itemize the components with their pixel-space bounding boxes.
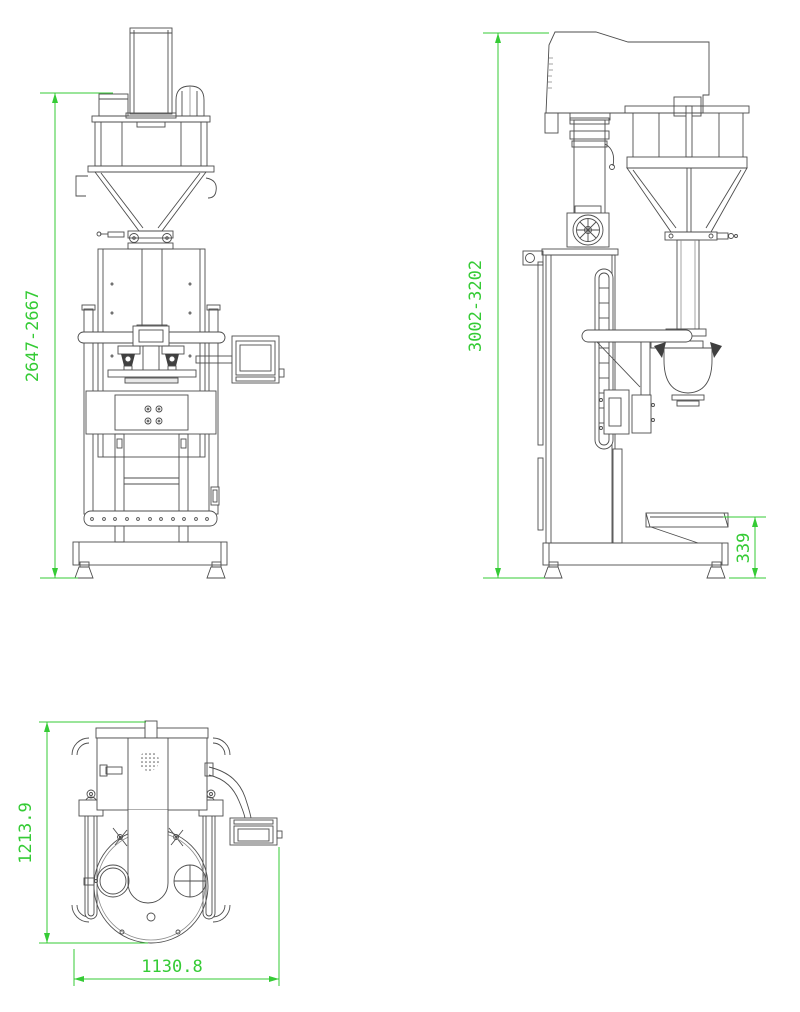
front-base [73, 542, 227, 578]
front-lower-box [86, 391, 216, 434]
side-fill-tube [651, 240, 722, 406]
side-height-dimension: 3002-3202 [466, 33, 549, 578]
plan-width-value: 1130.8 [141, 957, 202, 977]
side-view: 3002-3202 339 [466, 32, 766, 578]
front-left-box [99, 94, 128, 116]
side-height-value: 3002-3202 [466, 260, 486, 352]
side-conveyor-height-value: 339 [734, 533, 754, 564]
side-base [543, 543, 728, 578]
front-dome-cover [176, 86, 204, 116]
plan-hopper-circle [84, 810, 208, 943]
front-motor [126, 28, 176, 118]
side-handwheel [567, 206, 609, 247]
plan-body [97, 738, 213, 810]
plan-depth-value: 1213.9 [16, 802, 36, 863]
front-view: 2647-2667 [23, 28, 284, 578]
front-hopper-flange [97, 231, 173, 249]
side-conveyor-height-dimension: 339 [723, 517, 766, 578]
front-hopper [76, 166, 216, 231]
front-legs [115, 434, 219, 513]
front-machine [73, 28, 284, 578]
side-hopper [625, 106, 749, 240]
front-clamp-arm [78, 326, 225, 346]
front-grippers [108, 346, 196, 383]
plan-width-dimension: 1130.8 [74, 847, 279, 986]
plan-machine [72, 721, 282, 943]
front-conveyor [84, 511, 217, 542]
plan-hmi-panel [230, 818, 282, 845]
front-height-value: 2647-2667 [23, 290, 43, 382]
front-platform [92, 116, 210, 166]
plan-view: 1213.9 1130.8 [16, 721, 282, 986]
side-machine [523, 32, 749, 578]
side-conveyor [646, 513, 728, 543]
technical-drawing-page: 2647-2667 [0, 0, 800, 1012]
front-column [137, 249, 167, 334]
three-view-drawing: 2647-2667 [0, 0, 800, 1012]
plan-top-bar [96, 721, 208, 738]
